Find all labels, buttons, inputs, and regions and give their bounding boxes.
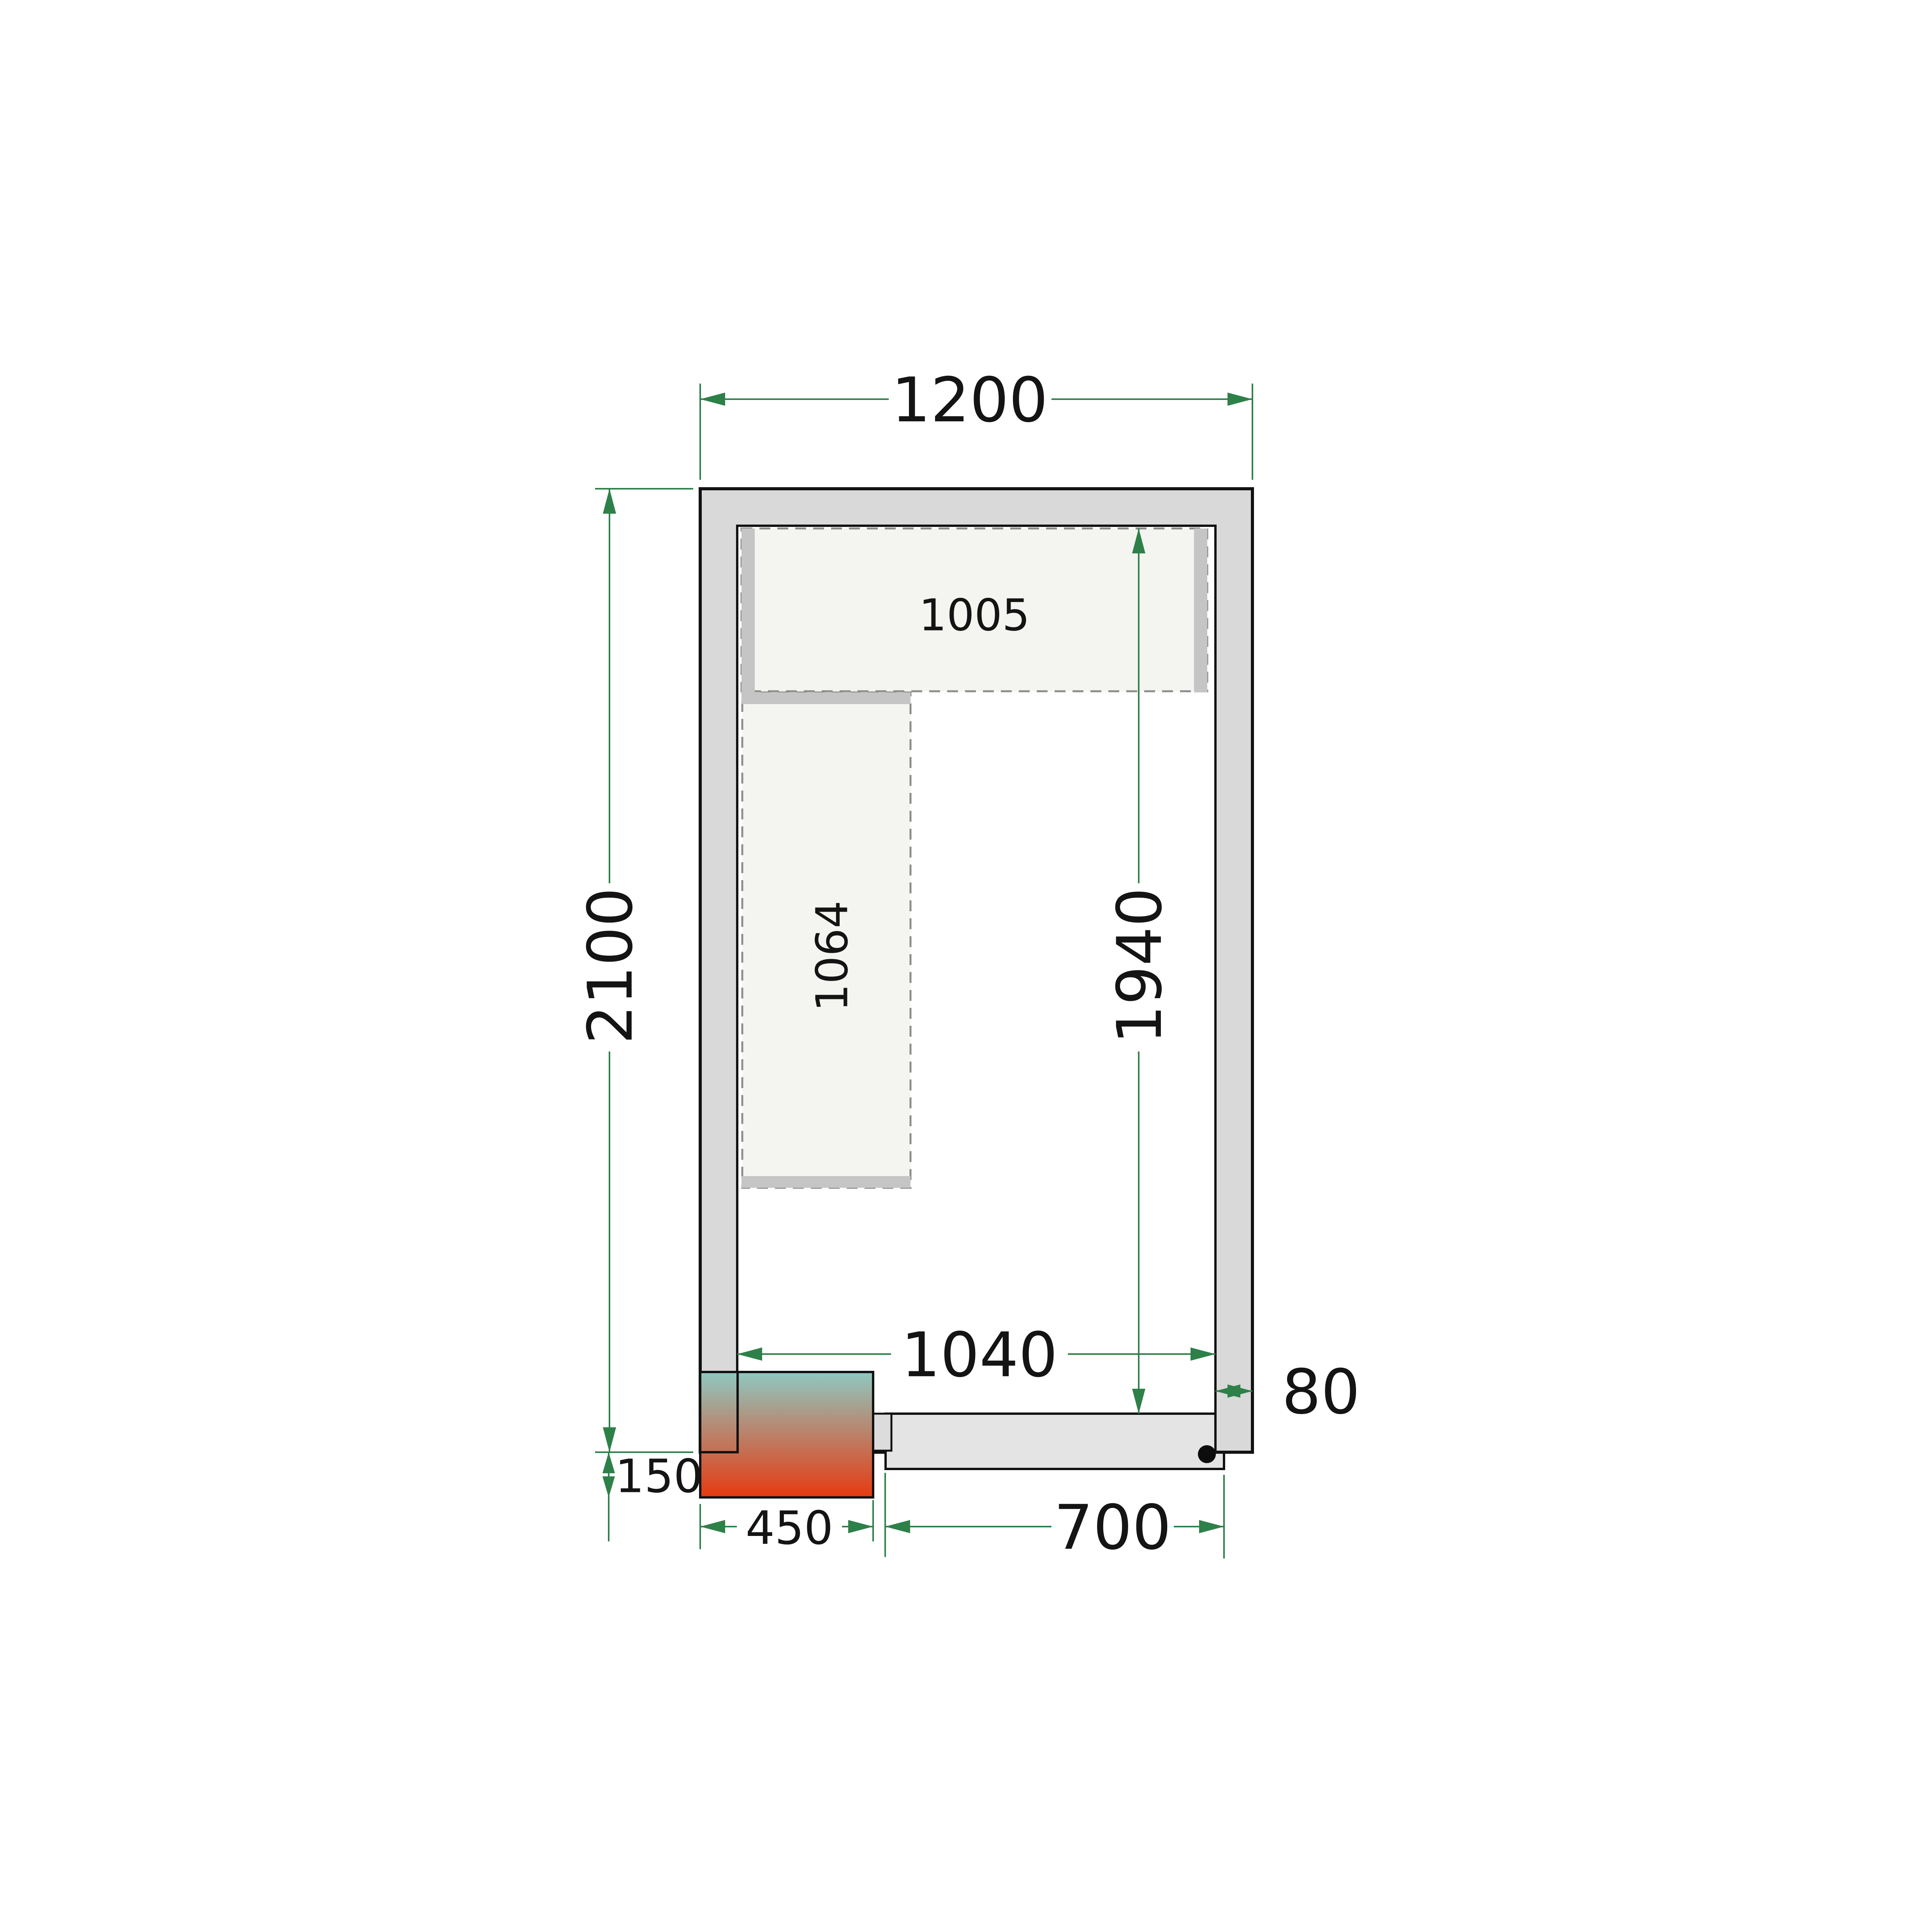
cooling-unit-body xyxy=(700,1372,873,1497)
label-top-shelf: 1005 xyxy=(919,590,1030,641)
arrow-2100-top xyxy=(603,489,616,514)
arrow-700-left xyxy=(885,1520,910,1533)
top-shelf-rail-right xyxy=(1194,528,1207,692)
label-interior-depth: 1940 xyxy=(1104,888,1176,1044)
arrow-1200-left xyxy=(700,393,725,406)
arrow-450-right xyxy=(848,1520,873,1533)
arrow-150-bottom xyxy=(602,1476,615,1497)
door-hinge-dot xyxy=(1198,1445,1216,1463)
label-interior-width: 1040 xyxy=(901,1319,1058,1391)
arrow-2100-bottom xyxy=(603,1427,616,1452)
label-overall-width: 1200 xyxy=(891,365,1048,436)
arrow-700-right xyxy=(1199,1520,1224,1533)
label-door-width: 700 xyxy=(1054,1492,1171,1564)
top-shelf-rail-left xyxy=(741,528,755,692)
label-wall-thickness: 80 xyxy=(1282,1356,1360,1428)
left-shelf-rail-top xyxy=(741,692,911,704)
label-unit-protrusion: 150 xyxy=(615,1449,703,1503)
label-overall-depth: 2100 xyxy=(575,888,646,1044)
arrow-150-top xyxy=(602,1452,615,1473)
floor-plan-canvas: 1200 2100 1940 1040 80 700 450 150 1005 … xyxy=(0,0,1932,1932)
door-jamb-stub xyxy=(873,1414,891,1451)
arrow-450-left xyxy=(700,1520,725,1533)
label-left-shelf: 1064 xyxy=(807,900,858,1011)
cooling-unit xyxy=(699,1372,873,1497)
door-leaf xyxy=(886,1414,1224,1469)
left-shelf-rail-bottom xyxy=(741,1176,911,1188)
right-wall-patch xyxy=(1214,1394,1254,1452)
label-unit-width: 450 xyxy=(745,1501,833,1555)
arrow-1200-right xyxy=(1228,393,1252,406)
